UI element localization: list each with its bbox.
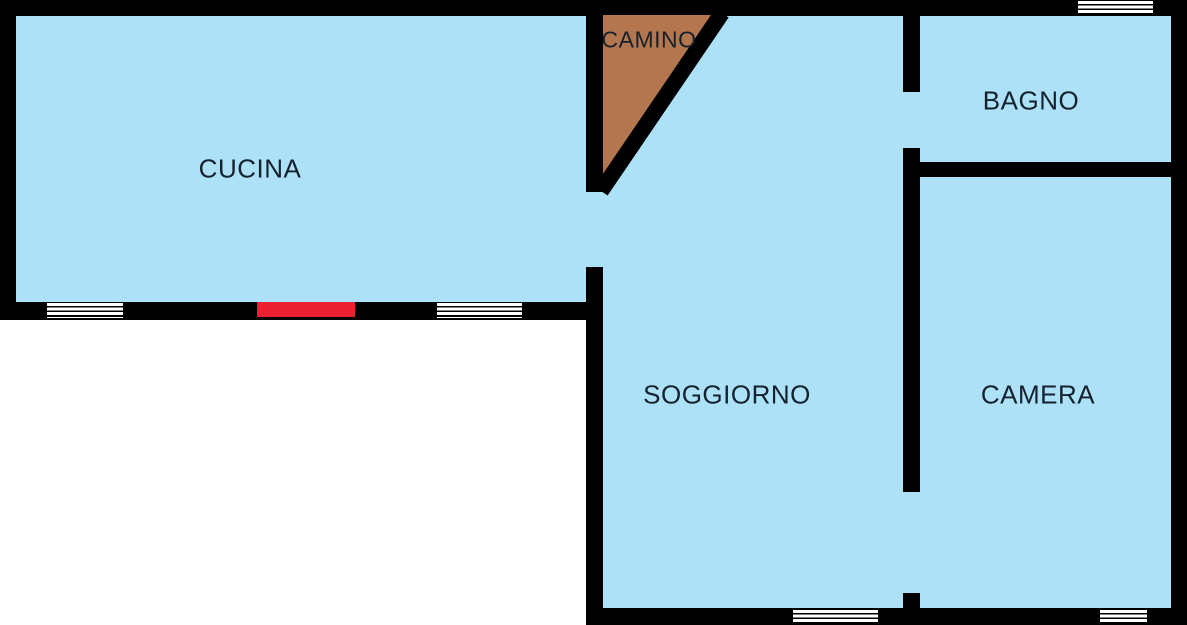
door-kitchen-entrance <box>257 302 355 317</box>
floor-plan: CUCINA CAMINO BAGNO SOGGIORNO CAMERA <box>0 0 1187 625</box>
room-label-soggiorno: SOGGIORNO <box>643 380 811 411</box>
wall-soggiorno-right-upper <box>903 15 920 92</box>
wall-soggiorno-right-stub <box>903 593 920 625</box>
room-label-cucina: CUCINA <box>199 154 302 185</box>
wall-bagno-camera-divider <box>920 162 1187 177</box>
room-label-camino: CAMINO <box>602 27 697 54</box>
wall-left-outer <box>0 0 16 320</box>
wall-kitchen-soggiorno-lower <box>586 267 603 625</box>
window-kitchen-left <box>47 303 123 318</box>
room-label-camera: CAMERA <box>981 380 1095 411</box>
floor-kitchen-area <box>16 16 602 302</box>
wall-soggiorno-right-middle <box>903 148 920 492</box>
wall-right-outer <box>1171 0 1187 625</box>
window-bagno-top <box>1078 1 1153 14</box>
window-camera-bottom <box>1100 610 1147 622</box>
window-kitchen-right <box>437 303 522 318</box>
wall-bottom-outer <box>586 608 1187 625</box>
room-label-bagno: BAGNO <box>983 86 1079 117</box>
window-soggiorno-bottom <box>793 610 878 622</box>
